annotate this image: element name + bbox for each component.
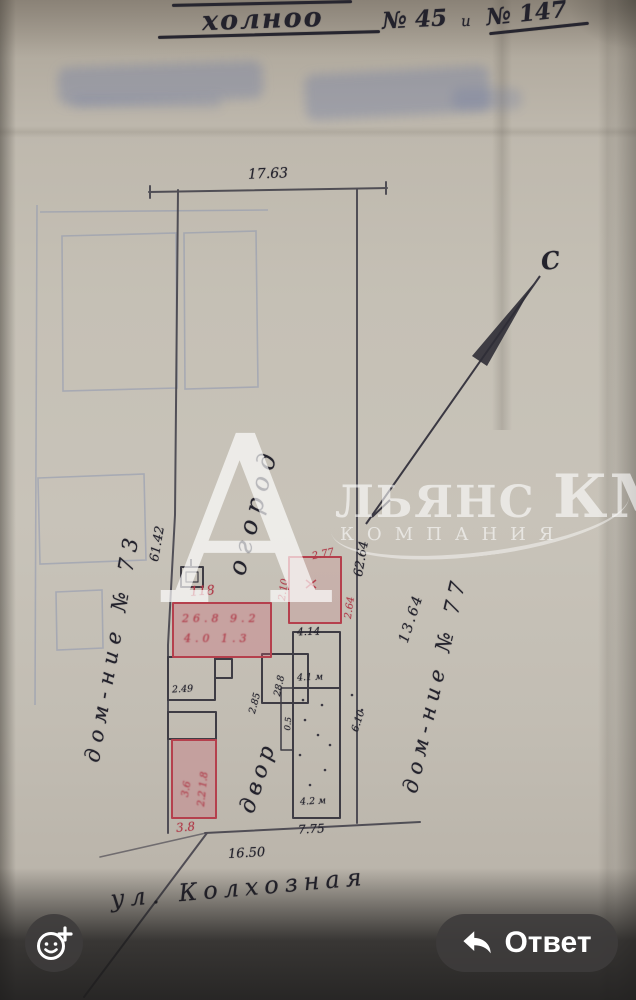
red-annotation: 26.8 9.2 xyxy=(182,612,259,625)
bottom-right-dimension: 7.75 xyxy=(298,821,325,836)
compass-arrow xyxy=(366,276,540,524)
dark-annotation: 2.49 xyxy=(172,683,194,695)
red-annotation: 4.0 1.3 xyxy=(184,632,250,645)
add-reaction-icon xyxy=(34,923,74,963)
bottom-left-dimension-red: 3.8 xyxy=(175,819,195,835)
add-reaction-button[interactable] xyxy=(25,914,83,972)
reply-arrow-icon xyxy=(462,929,494,958)
compass-north-label: С xyxy=(539,245,562,276)
plan-drawing xyxy=(0,0,636,1000)
media-viewer: холноо № 45 и № 147 xyxy=(0,0,636,1000)
dark-annotation: 4.14 xyxy=(297,626,321,639)
dark-annotation: 4.2 м xyxy=(300,795,327,807)
reply-button[interactable]: Ответ xyxy=(436,914,618,972)
top-dimension-label: 17.63 xyxy=(248,165,289,182)
dark-annotation: 0.5 xyxy=(283,717,294,732)
reply-label: Ответ xyxy=(504,928,591,958)
bottom-dimension-label: 16.50 xyxy=(228,845,266,862)
pencil-speckles xyxy=(299,694,364,787)
red-annotation: 118 xyxy=(190,583,216,600)
dark-annotation: 4.1 м xyxy=(297,672,323,684)
